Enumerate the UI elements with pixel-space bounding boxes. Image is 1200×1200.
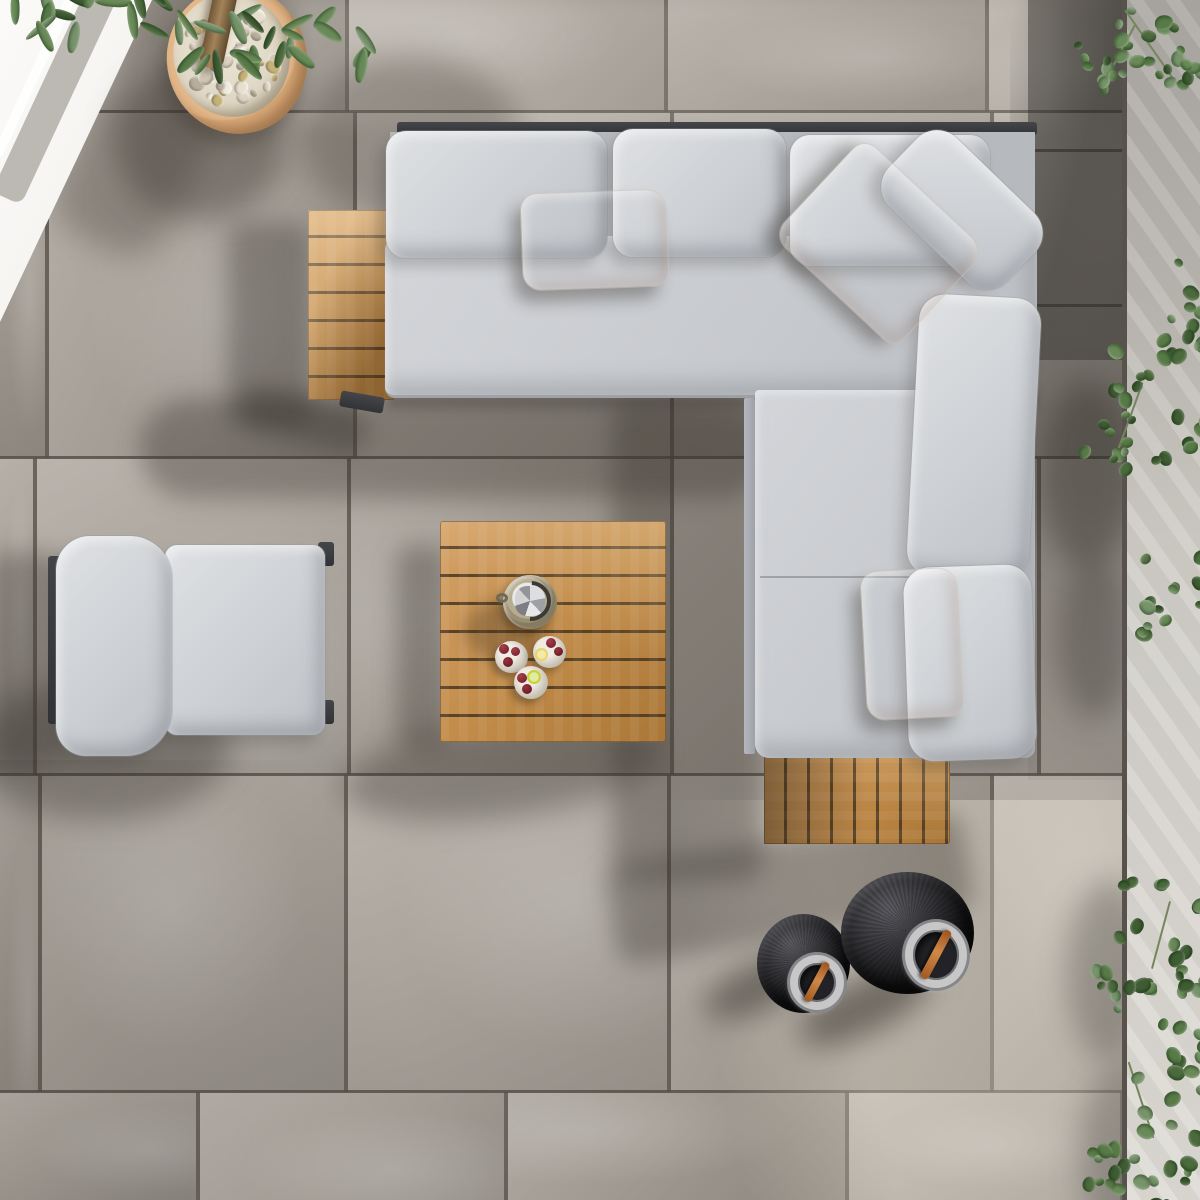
cherries [503, 657, 513, 667]
ivy-leaf [1157, 613, 1173, 628]
ivy-leaf [1163, 1091, 1183, 1109]
ivy-leaf [1112, 48, 1130, 64]
olive-leaf [10, 0, 20, 25]
pillow-stripes [520, 189, 668, 290]
ivy-leaf [1157, 879, 1170, 890]
ivy-leaf [1188, 1130, 1200, 1148]
ivy-leaf [1139, 28, 1157, 45]
ivy-leaf [1105, 340, 1126, 362]
olive-leaf [192, 18, 226, 37]
ivy-leaf [1151, 456, 1162, 466]
grout-line [347, 458, 351, 775]
olive-leaf [139, 20, 170, 42]
ivy-leaf [1134, 1120, 1157, 1143]
ivy-leaf [1128, 54, 1145, 69]
ice-bucket-clip [496, 593, 508, 603]
shade-bottom-left [0, 760, 640, 1200]
side-table-shade [308, 210, 394, 400]
ivy-leaf [1161, 1158, 1180, 1179]
cherries [517, 673, 527, 683]
dessert-glass-2 [533, 636, 566, 668]
ice-bucket [503, 575, 557, 629]
ivy-vines [1000, 0, 1200, 1200]
cherries [554, 647, 563, 656]
lantern-strap [803, 961, 831, 1004]
ivy-leaf [1155, 1016, 1171, 1032]
lantern-ring [905, 922, 967, 988]
ivy-leaf [1098, 964, 1113, 981]
ivy-leaf [1166, 313, 1176, 324]
ivy-leaf [1113, 930, 1127, 946]
olive-leaf [210, 49, 224, 85]
ivy-leaf [1164, 1117, 1180, 1132]
ivy-leaf [1193, 599, 1200, 611]
olive-leaf [65, 21, 83, 55]
ivy-leaf [1075, 443, 1093, 461]
ivy-leaf [1130, 1171, 1152, 1194]
cherries [499, 644, 509, 654]
lemon-slice [535, 648, 548, 661]
ivy-leaf [1195, 1082, 1200, 1098]
cherries [546, 638, 556, 648]
lime-slice [527, 670, 541, 684]
ivy-leaf [1113, 18, 1125, 31]
ivy-leaf [1116, 460, 1136, 479]
ivy-leaf [1192, 340, 1200, 352]
sofa-side-table-left [308, 210, 394, 400]
ivy-leaf [1138, 552, 1152, 565]
ivy-leaf [1183, 441, 1198, 454]
ivy-leaf [1193, 897, 1200, 913]
cherries [522, 684, 532, 694]
cherries [511, 647, 520, 656]
ivy-leaf [1074, 41, 1084, 49]
olive-leaf [312, 17, 345, 46]
foliage-top-left [0, 0, 420, 110]
ivy-leaf [1163, 63, 1174, 75]
lantern-small [757, 914, 850, 1013]
ivy-leaf [1117, 68, 1128, 80]
sofa-side-table-bottom [764, 754, 950, 844]
ivy-leaf [1173, 257, 1184, 269]
ivy-leaf [1177, 1152, 1200, 1175]
ivy-leaf [1194, 550, 1200, 565]
ivy-leaf [1180, 282, 1200, 304]
ivy-leaf [1169, 407, 1186, 426]
ivy-leaf [1095, 1178, 1105, 1186]
pillow-stripes [860, 568, 964, 721]
ivy-leaf [1135, 1102, 1155, 1123]
dessert-glass-3 [514, 666, 548, 699]
ivy-leaf [1162, 75, 1177, 89]
ivy-leaf [1096, 981, 1107, 991]
ivy-leaf [1127, 916, 1147, 936]
lantern-large [841, 872, 974, 994]
lantern-ring [790, 955, 844, 1010]
bench-shade [764, 754, 950, 844]
ivy-leaf [1170, 1019, 1189, 1037]
pillow-striped-3 [860, 568, 964, 721]
patio-scene [0, 0, 1200, 1200]
ivy-leaf [1189, 574, 1200, 593]
ivy-leaf [1112, 1003, 1123, 1015]
pillow-striped-1 [520, 189, 668, 290]
lantern-strap [919, 929, 952, 981]
